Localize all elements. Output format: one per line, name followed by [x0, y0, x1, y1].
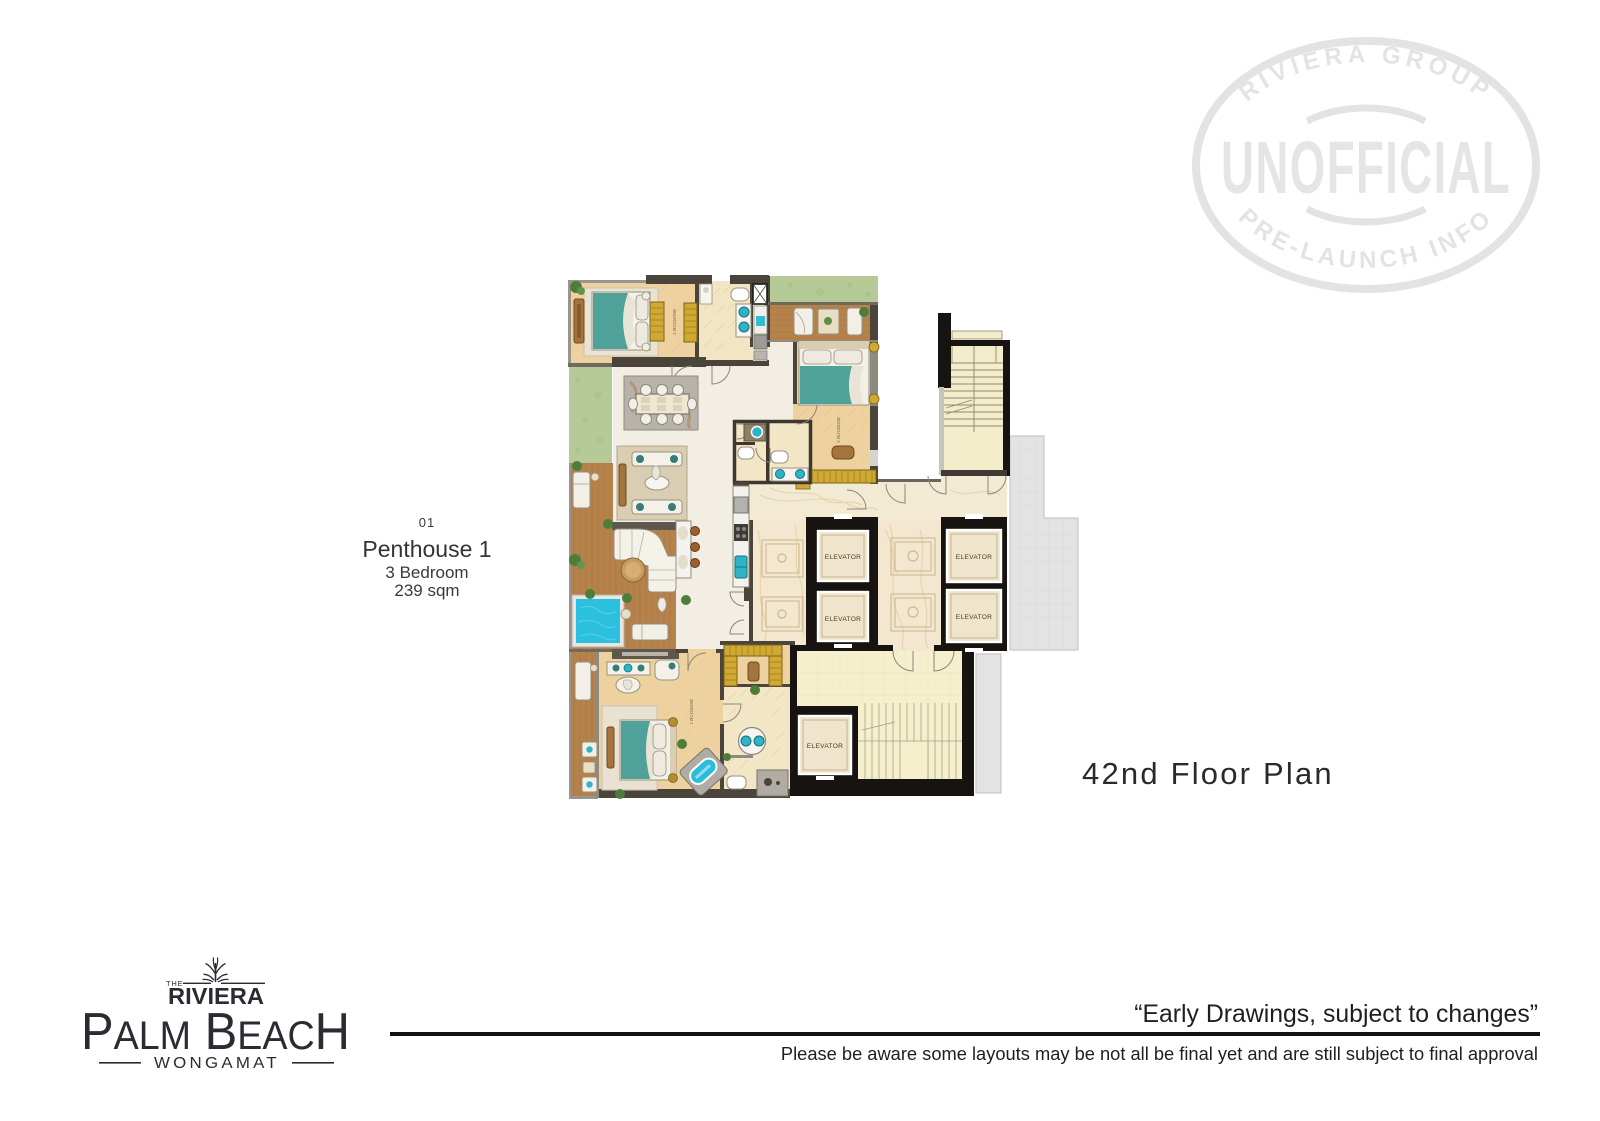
svg-text:3 Bedroom: 3 Bedroom	[385, 563, 468, 582]
svg-text:PALM BEACH: PALM BEACH	[81, 1003, 350, 1061]
svg-text:Please be aware some layouts m: Please be aware some layouts may be not …	[781, 1043, 1538, 1064]
svg-text:UNOFFICIAL: UNOFFICIAL	[1221, 127, 1511, 210]
svg-text:01: 01	[419, 515, 435, 530]
svg-text:BEDROOM 2: BEDROOM 2	[672, 309, 677, 335]
svg-text:RIVIERA GROUP: RIVIERA GROUP	[1234, 41, 1498, 107]
svg-text:ELEVATOR: ELEVATOR	[956, 554, 992, 561]
svg-text:WONGAMAT: WONGAMAT	[154, 1055, 280, 1072]
svg-text:239 sqm: 239 sqm	[394, 581, 459, 600]
svg-text:ELEVATOR: ELEVATOR	[807, 743, 843, 750]
svg-text:“Early Drawings, subject to ch: “Early Drawings, subject to changes”	[1134, 1001, 1538, 1028]
svg-text:PRE-LAUNCH INFO: PRE-LAUNCH INFO	[1233, 203, 1499, 274]
svg-text:42nd Floor Plan: 42nd Floor Plan	[1082, 756, 1334, 791]
svg-text:ELEVATOR: ELEVATOR	[825, 554, 861, 561]
svg-text:Penthouse 1: Penthouse 1	[362, 536, 491, 562]
svg-text:ELEVATOR: ELEVATOR	[825, 616, 861, 623]
svg-text:BEDROOM 1: BEDROOM 1	[689, 699, 694, 725]
svg-text:BEDROOM 3: BEDROOM 3	[836, 417, 841, 443]
svg-text:ELEVATOR: ELEVATOR	[956, 614, 992, 621]
